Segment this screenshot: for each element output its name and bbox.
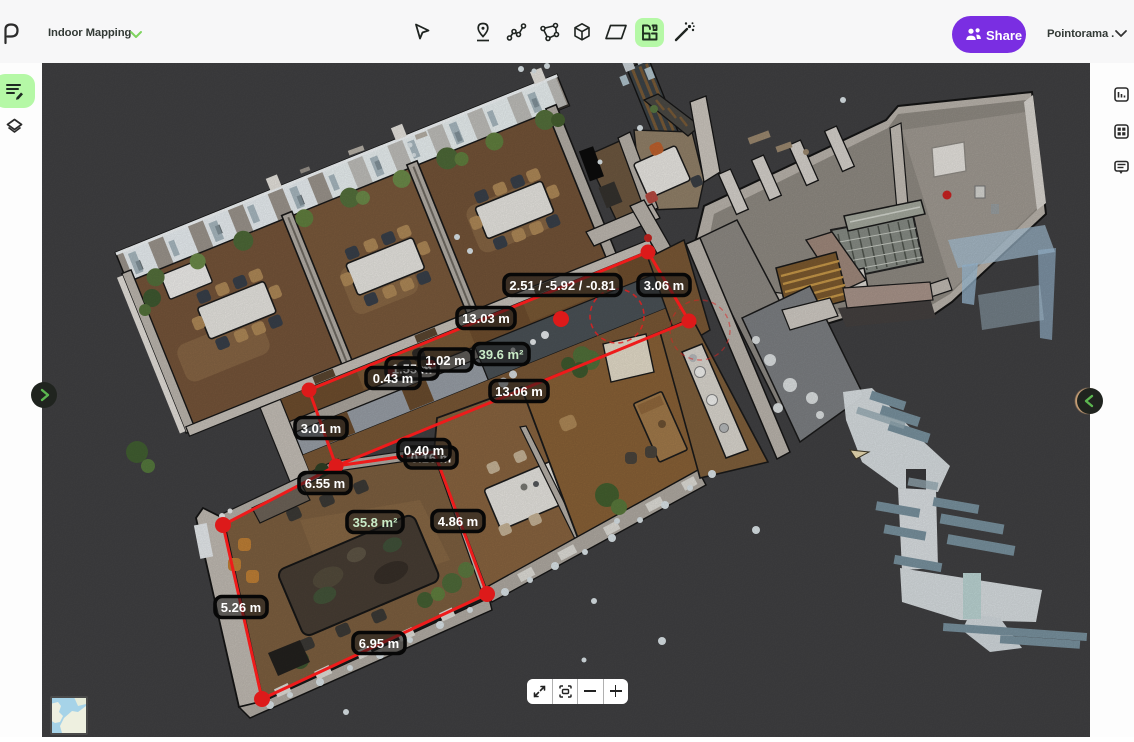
- svg-text:4.86 m: 4.86 m: [438, 514, 478, 529]
- svg-text:3.06 m: 3.06 m: [644, 278, 684, 293]
- svg-text:6.95 m: 6.95 m: [359, 636, 399, 651]
- svg-text:13.03 m: 13.03 m: [462, 311, 510, 326]
- svg-text:35.8 m²: 35.8 m²: [353, 515, 398, 530]
- svg-text:6.55 m: 6.55 m: [305, 476, 345, 491]
- svg-text:0.43 m: 0.43 m: [373, 371, 413, 386]
- svg-text:3.01 m: 3.01 m: [301, 421, 341, 436]
- svg-text:0.40 m: 0.40 m: [404, 443, 444, 458]
- svg-text:5.26 m: 5.26 m: [221, 600, 261, 615]
- svg-text:1.02 m: 1.02 m: [425, 353, 465, 368]
- svg-text:2.51 / -5.92 / -0.81: 2.51 / -5.92 / -0.81: [509, 278, 615, 293]
- svg-text:13.06 m: 13.06 m: [495, 384, 543, 399]
- svg-text:39.6 m²: 39.6 m²: [479, 347, 524, 362]
